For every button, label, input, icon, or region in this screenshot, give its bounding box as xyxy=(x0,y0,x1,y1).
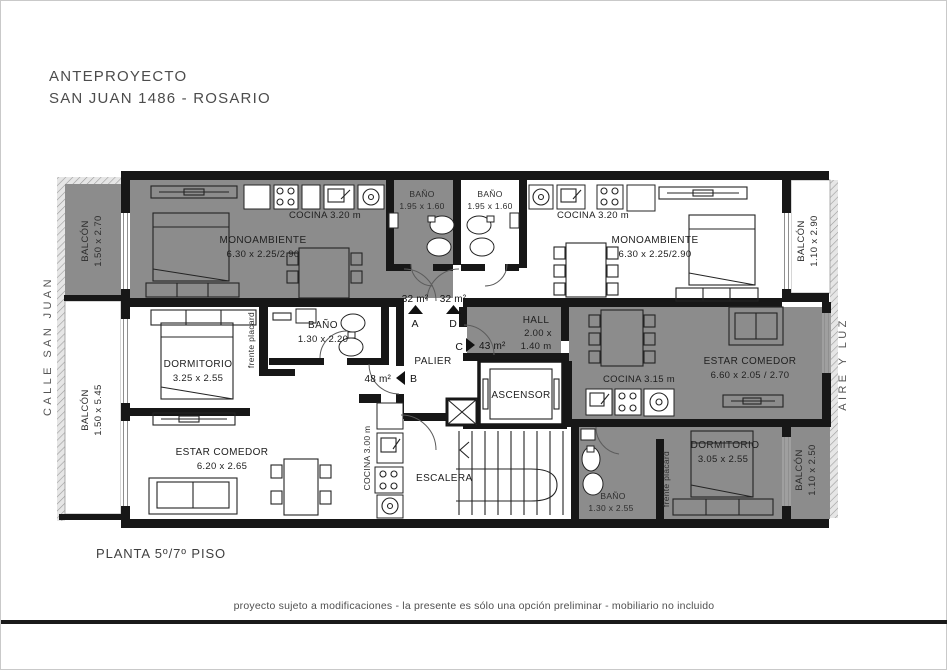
room-dims-estar-left: 6.20 x 2.65 xyxy=(197,461,247,472)
label-cocina-mid-right: COCINA 3.15 m xyxy=(603,374,675,385)
unit-c-area-label: 43 m² xyxy=(479,341,506,352)
air-light-label: AIRE Y LUZ xyxy=(837,317,849,411)
bidet-icon xyxy=(470,238,494,256)
dining-table-icon xyxy=(271,459,331,515)
oven-icon xyxy=(529,185,553,209)
label-cocina-top-left: COCINA 3.20 m xyxy=(289,210,361,221)
oven-icon xyxy=(358,185,384,209)
balcony-bottom-right-name: BALCÓN xyxy=(794,449,805,490)
shelf-icon xyxy=(273,313,291,320)
room-label-bano-top-right: BAÑO xyxy=(477,189,502,199)
bed-icon xyxy=(689,215,755,285)
balcony-top-left-dims: 1.50 x 2.70 xyxy=(93,215,104,266)
label-frente-placard-right: frente placard xyxy=(661,451,671,507)
room-label-dormitorio-right: DORMITORIO xyxy=(691,440,760,451)
label-cocina-bottom-left: COCINA 3.00 m xyxy=(362,426,372,491)
counter-icon xyxy=(377,403,403,429)
room-dims-estar-right: 6.60 x 2.05 / 2.70 xyxy=(711,370,790,381)
room-label-estar-right: ESTAR COMEDOR xyxy=(704,356,797,367)
unit-d-area-label: 32 m² xyxy=(440,294,467,305)
window-balcony-top-right xyxy=(782,213,791,289)
floor-plan-sheet: ANTEPROYECTO SAN JUAN 1486 - ROSARIO CAL… xyxy=(0,0,947,670)
counter-icon xyxy=(302,185,320,209)
room-dims-monoambiente-left: 6.30 x 2.25/2.90 xyxy=(227,249,300,260)
window-estar-right xyxy=(822,313,831,373)
dining-table-icon xyxy=(554,243,618,297)
room-dims-monoambiente-right: 6.30 x 2.25/2.90 xyxy=(619,249,692,260)
project-title: ANTEPROYECTO xyxy=(49,68,187,85)
unit-a-area-label: 32 m² xyxy=(402,294,429,305)
room-label-monoambiente-left: MONOAMBIENTE xyxy=(219,235,306,246)
street-label: CALLE SAN JUAN xyxy=(42,276,54,416)
room-dims-bano-top-left: 1.95 x 1.60 xyxy=(399,201,444,211)
label-frente-placard-left: frente placard xyxy=(246,312,256,368)
stair-direction-arrow-icon xyxy=(460,442,469,458)
balcony-left-divider xyxy=(64,295,121,301)
fridge-icon xyxy=(244,185,270,209)
room-label-bano-bottom-right: BAÑO xyxy=(600,491,625,501)
stove-icon xyxy=(274,185,298,209)
window-balcony-bottom-right xyxy=(782,437,791,506)
sink-icon xyxy=(389,213,398,228)
arrow-up-a-icon xyxy=(408,305,423,314)
room-label-estar-left: ESTAR COMEDOR xyxy=(176,447,269,458)
sink-icon xyxy=(324,185,354,209)
room-label-bano-mid-left: BAÑO xyxy=(308,318,338,331)
unit-a-letter: A xyxy=(411,318,418,330)
sink-icon xyxy=(581,429,595,440)
plan-level-label: PLANTA 5º/7º PISO xyxy=(96,546,226,561)
balcony-bottom-right-dims: 1.10 x 2.50 xyxy=(807,444,818,495)
toilet-icon xyxy=(341,314,365,332)
room-label-ascensor: ASCENSOR xyxy=(491,390,550,401)
unit-c-letter: C xyxy=(455,341,463,353)
window-estar-left xyxy=(121,421,130,506)
room-label-monoambiente-right: MONOAMBIENTE xyxy=(611,235,698,246)
footer-rule xyxy=(1,620,947,624)
window-dormitorio-left xyxy=(121,319,130,403)
arrow-left-b-icon xyxy=(396,371,405,385)
room-label-bano-top-left: BAÑO xyxy=(409,189,434,199)
duct-shaft xyxy=(447,399,477,425)
dormitorio-left-furniture xyxy=(151,310,256,399)
unit-b-letter: B xyxy=(410,373,417,385)
balcony-bottom-left-dims: 1.50 x 5.45 xyxy=(93,384,104,435)
stove-icon xyxy=(615,389,641,415)
sink-icon xyxy=(510,213,519,228)
room-dims-bano-mid-left: 1.30 x 2.20 xyxy=(298,334,348,345)
sofa-icon xyxy=(149,478,237,514)
oven-icon xyxy=(377,495,403,518)
unit-d-letter: D xyxy=(449,318,457,330)
room-dims-hall-1: 2.00 x xyxy=(524,328,552,339)
balcony-top-right-name: BALCÓN xyxy=(796,220,807,261)
room-label-hall: HALL xyxy=(523,315,550,326)
project-address: SAN JUAN 1486 - ROSARIO xyxy=(49,90,271,107)
balcony-top-left-name: BALCÓN xyxy=(80,220,91,261)
bano-d-fixtures xyxy=(467,213,519,256)
balcony-top-right-dims: 1.10 x 2.90 xyxy=(809,215,820,266)
sink-icon xyxy=(377,433,403,463)
room-dims-bano-bottom-right: 1.30 x 2.55 xyxy=(588,503,633,513)
arrow-up-d-icon xyxy=(446,305,461,314)
stove-icon xyxy=(375,467,403,493)
oven-icon xyxy=(644,389,674,416)
room-label-escalera: ESCALERA xyxy=(416,473,473,484)
room-dims-dormitorio-right: 3.05 x 2.55 xyxy=(698,454,748,465)
room-label-palier: PALIER xyxy=(414,356,451,367)
fridge-icon xyxy=(627,185,655,211)
room-dims-hall-2: 1.40 m xyxy=(521,341,552,352)
room-dims-dormitorio-left: 3.25 x 2.55 xyxy=(173,373,223,384)
title-block: ANTEPROYECTO SAN JUAN 1486 - ROSARIO xyxy=(49,68,271,107)
floor-plan-canvas: ANTEPROYECTO SAN JUAN 1486 - ROSARIO CAL… xyxy=(1,1,947,671)
window-balcony-top-left xyxy=(121,213,130,289)
balcony-bottom-left-edge xyxy=(59,514,121,520)
disclaimer-text: proyecto sujeto a modificaciones - la pr… xyxy=(234,600,715,612)
cocina-mid-right-appliances xyxy=(586,389,674,416)
cocina-bottom-left-appliances xyxy=(375,403,403,518)
balcony-bottom-left-name: BALCÓN xyxy=(80,389,91,430)
room-label-dormitorio-left: DORMITORIO xyxy=(164,359,233,370)
bidet-icon xyxy=(427,238,451,256)
sink-icon xyxy=(557,185,585,209)
unit-b-area-label: 48 m² xyxy=(364,374,391,385)
room-dims-bano-top-right: 1.95 x 1.60 xyxy=(467,201,512,211)
label-cocina-top-right: COCINA 3.20 m xyxy=(557,210,629,221)
bano-mid-left-fixtures xyxy=(273,309,365,356)
stove-icon xyxy=(597,185,623,209)
sink-icon xyxy=(586,389,612,415)
